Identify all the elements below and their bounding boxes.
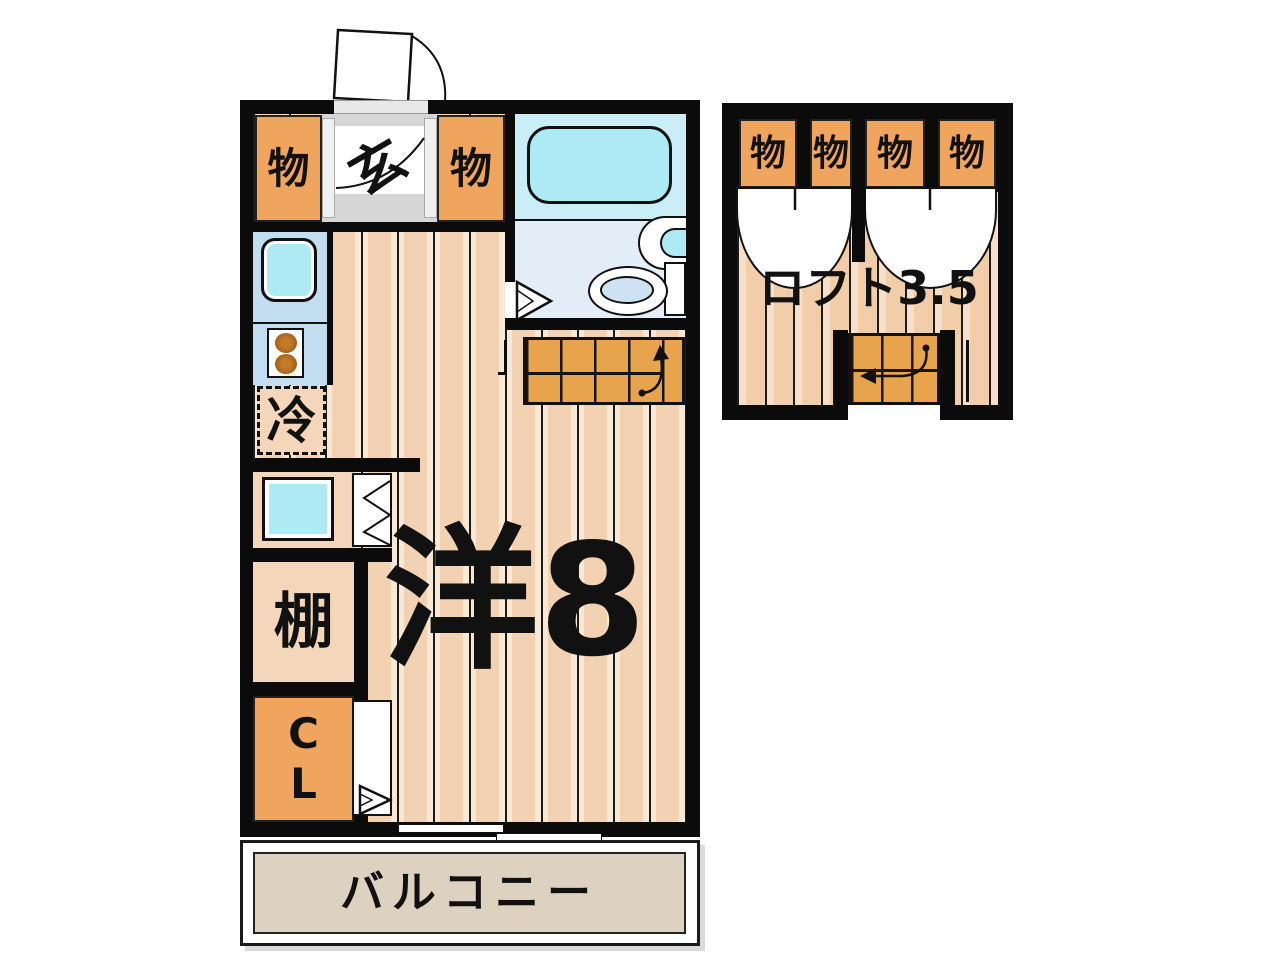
loft-size-label: ロフト3.5: [759, 265, 979, 311]
toilet-bowl: [588, 266, 668, 316]
loft-center-wall: [852, 117, 865, 262]
western-room-label: 洋8: [360, 505, 670, 695]
refrigerator-space: 冷: [257, 386, 326, 455]
loft-label-wrap: ロフト3.5: [740, 262, 998, 314]
loft-stairs-wall-right: [940, 330, 955, 420]
stairs-railing: [504, 340, 507, 374]
closet-folding-door: [352, 700, 392, 816]
wall-below-top-strip: [253, 222, 510, 232]
kitchen-right-wall: [327, 232, 333, 385]
loft-stairs-wall-left: [833, 330, 848, 420]
bathtub: [527, 126, 672, 204]
balcony: バルコニー: [253, 852, 686, 934]
wall-segment: [253, 458, 420, 472]
balcony-label: バルコニー: [340, 871, 599, 915]
refrigerator-label: 冷: [267, 396, 317, 446]
folding-door-arrow: [354, 702, 394, 818]
genkan-label-wrap: 玄: [326, 126, 430, 210]
kitchen-area: [253, 232, 327, 385]
toilet-bowl-inner: [600, 276, 654, 304]
storage-label: 物: [450, 148, 492, 190]
stairs-railing: [498, 372, 507, 375]
floor-plan: 物 玄 物 冷: [0, 0, 1276, 960]
room-size-label: 洋8: [384, 523, 647, 678]
loft-stairs-opening: [848, 405, 940, 420]
genkan-label: 玄: [341, 131, 415, 205]
loft-railing: [966, 340, 969, 402]
closet-cl: C L: [253, 696, 354, 822]
washer-area: [253, 472, 350, 548]
bathroom-bottom-wall: [505, 318, 686, 330]
washing-machine-space: [262, 477, 334, 541]
entrance-door-sill: [334, 100, 428, 114]
kitchen-sink: [261, 238, 317, 302]
stove: [267, 328, 304, 378]
shelf-label: 棚: [274, 592, 334, 652]
stove-burner-bottom: [275, 354, 297, 374]
storage-closet-top-left: 物: [255, 115, 322, 222]
bathroom-door: [505, 280, 555, 322]
shelf-room: 棚: [253, 562, 354, 682]
storage-label: 物: [267, 148, 309, 190]
loft-stairs-down-arrow: [856, 338, 936, 384]
closet-label-c: C: [288, 713, 319, 755]
bathroom-sink-bowl: [660, 228, 686, 258]
balcony-window-sash: [398, 824, 504, 833]
storage-closet-top-right: 物: [437, 115, 505, 222]
wall-segment: [253, 682, 368, 696]
closet-label-l: L: [290, 763, 317, 805]
kitchen-divider: [253, 322, 327, 324]
stairs-up-arrow: [628, 339, 680, 403]
stove-burner-top: [275, 333, 297, 353]
